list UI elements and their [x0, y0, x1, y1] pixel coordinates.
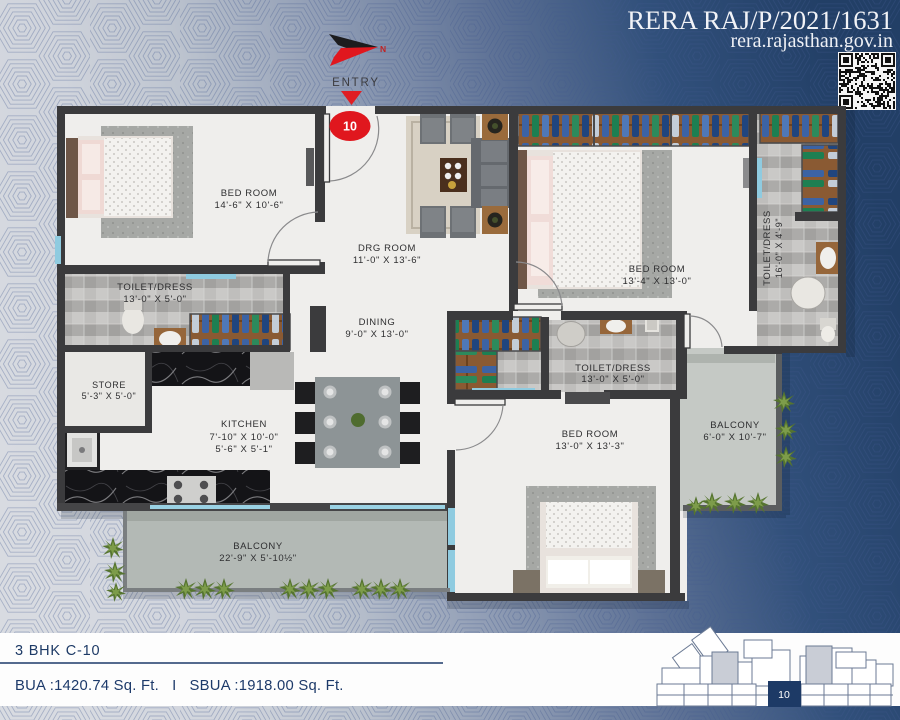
svg-text:BED ROOM: BED ROOM — [221, 188, 278, 199]
svg-text:STORE: STORE — [92, 380, 126, 390]
svg-text:13'-0" X 5'-0": 13'-0" X 5'-0" — [581, 374, 644, 385]
svg-text:TOILET/DRESS: TOILET/DRESS — [575, 363, 651, 374]
svg-text:11'-0" X 13'-6": 11'-0" X 13'-6" — [353, 255, 421, 266]
svg-text:9'-0" X 13'-0": 9'-0" X 13'-0" — [345, 329, 408, 340]
svg-text:5'-6" X 5'-1": 5'-6" X 5'-1" — [215, 444, 272, 455]
svg-text:7'-10" X 10'-0": 7'-10" X 10'-0" — [209, 432, 278, 443]
svg-text:14'-6" X 10'-6": 14'-6" X 10'-6" — [214, 200, 283, 211]
svg-text:13'-0" X 13'-3": 13'-0" X 13'-3" — [555, 441, 624, 452]
svg-text:6'-0" X 10'-7": 6'-0" X 10'-7" — [703, 432, 766, 443]
svg-text:BED ROOM: BED ROOM — [629, 264, 686, 275]
svg-text:BALCONY: BALCONY — [710, 420, 760, 431]
svg-text:TOILET/DRESS: TOILET/DRESS — [117, 282, 193, 293]
svg-text:DINING: DINING — [359, 317, 396, 328]
svg-text:13'-4" X 13'-0": 13'-4" X 13'-0" — [622, 276, 691, 287]
svg-text:5'-3" X 5'-0": 5'-3" X 5'-0" — [82, 391, 137, 401]
svg-text:KITCHEN: KITCHEN — [221, 419, 267, 430]
svg-text:ENTRY: ENTRY — [332, 77, 380, 89]
svg-text:3 BHK C-10: 3 BHK C-10 — [15, 643, 100, 659]
svg-text:10: 10 — [778, 689, 790, 701]
svg-text:BED ROOM: BED ROOM — [562, 429, 619, 440]
svg-text:10: 10 — [343, 120, 357, 134]
svg-text:DRG ROOM: DRG ROOM — [358, 243, 416, 254]
svg-text:13'-0" X 5'-0": 13'-0" X 5'-0" — [123, 294, 186, 305]
svg-text:16'-0" X 4'-9": 16'-0" X 4'-9" — [774, 218, 784, 278]
svg-text:rera.rajasthan.gov.in: rera.rajasthan.gov.in — [730, 30, 893, 52]
svg-text:BALCONY: BALCONY — [233, 541, 283, 552]
svg-text:BUA :1420.74 Sq. Ft. I SBU: BUA :1420.74 Sq. Ft. I SBUA :1918.00 Sq.… — [15, 678, 344, 694]
svg-text:22'-9" X 5'-10½": 22'-9" X 5'-10½" — [219, 553, 297, 564]
svg-text:N: N — [380, 44, 386, 54]
svg-text:TOILET/DRESS: TOILET/DRESS — [762, 210, 773, 286]
